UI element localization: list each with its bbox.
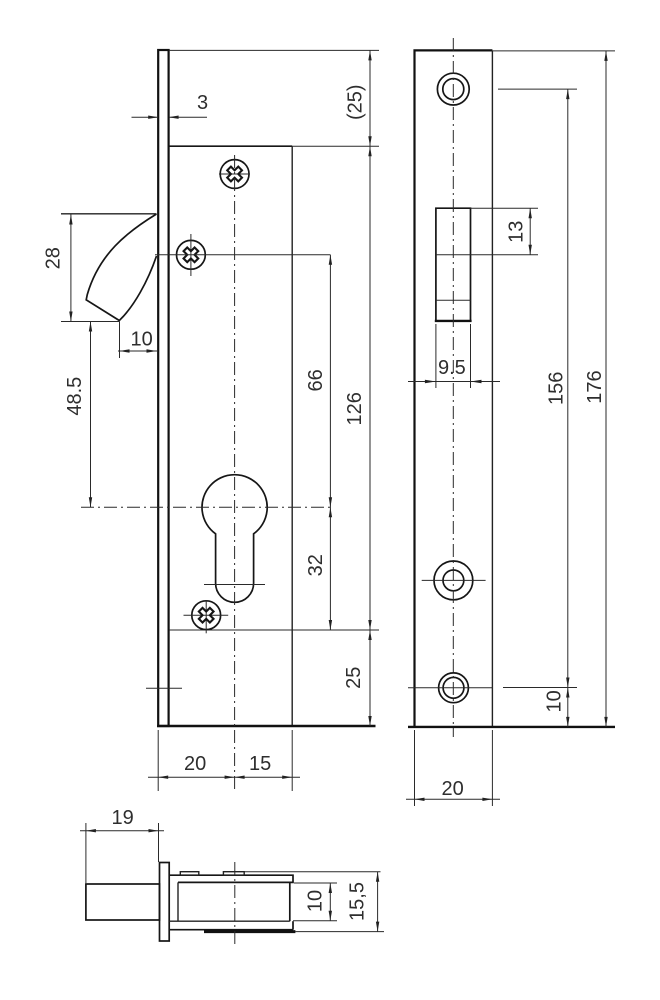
svg-text:20: 20: [442, 778, 464, 800]
svg-text:66: 66: [305, 369, 327, 391]
svg-text:9.5: 9.5: [438, 357, 466, 379]
svg-text:15,5: 15,5: [346, 882, 368, 921]
svg-text:176: 176: [584, 370, 606, 403]
svg-text:13: 13: [506, 221, 528, 243]
svg-text:32: 32: [305, 554, 327, 576]
svg-text:(25): (25): [344, 84, 366, 120]
svg-text:3: 3: [197, 92, 208, 114]
svg-text:156: 156: [546, 372, 568, 405]
svg-text:15: 15: [249, 753, 271, 775]
svg-text:25: 25: [343, 667, 365, 689]
svg-text:10: 10: [544, 690, 566, 712]
svg-text:19: 19: [112, 807, 134, 829]
svg-text:48.5: 48.5: [64, 377, 86, 416]
svg-text:28: 28: [43, 247, 65, 269]
svg-text:20: 20: [184, 753, 206, 775]
svg-text:10: 10: [305, 890, 327, 912]
svg-text:10: 10: [131, 329, 153, 351]
svg-text:126: 126: [344, 392, 366, 425]
